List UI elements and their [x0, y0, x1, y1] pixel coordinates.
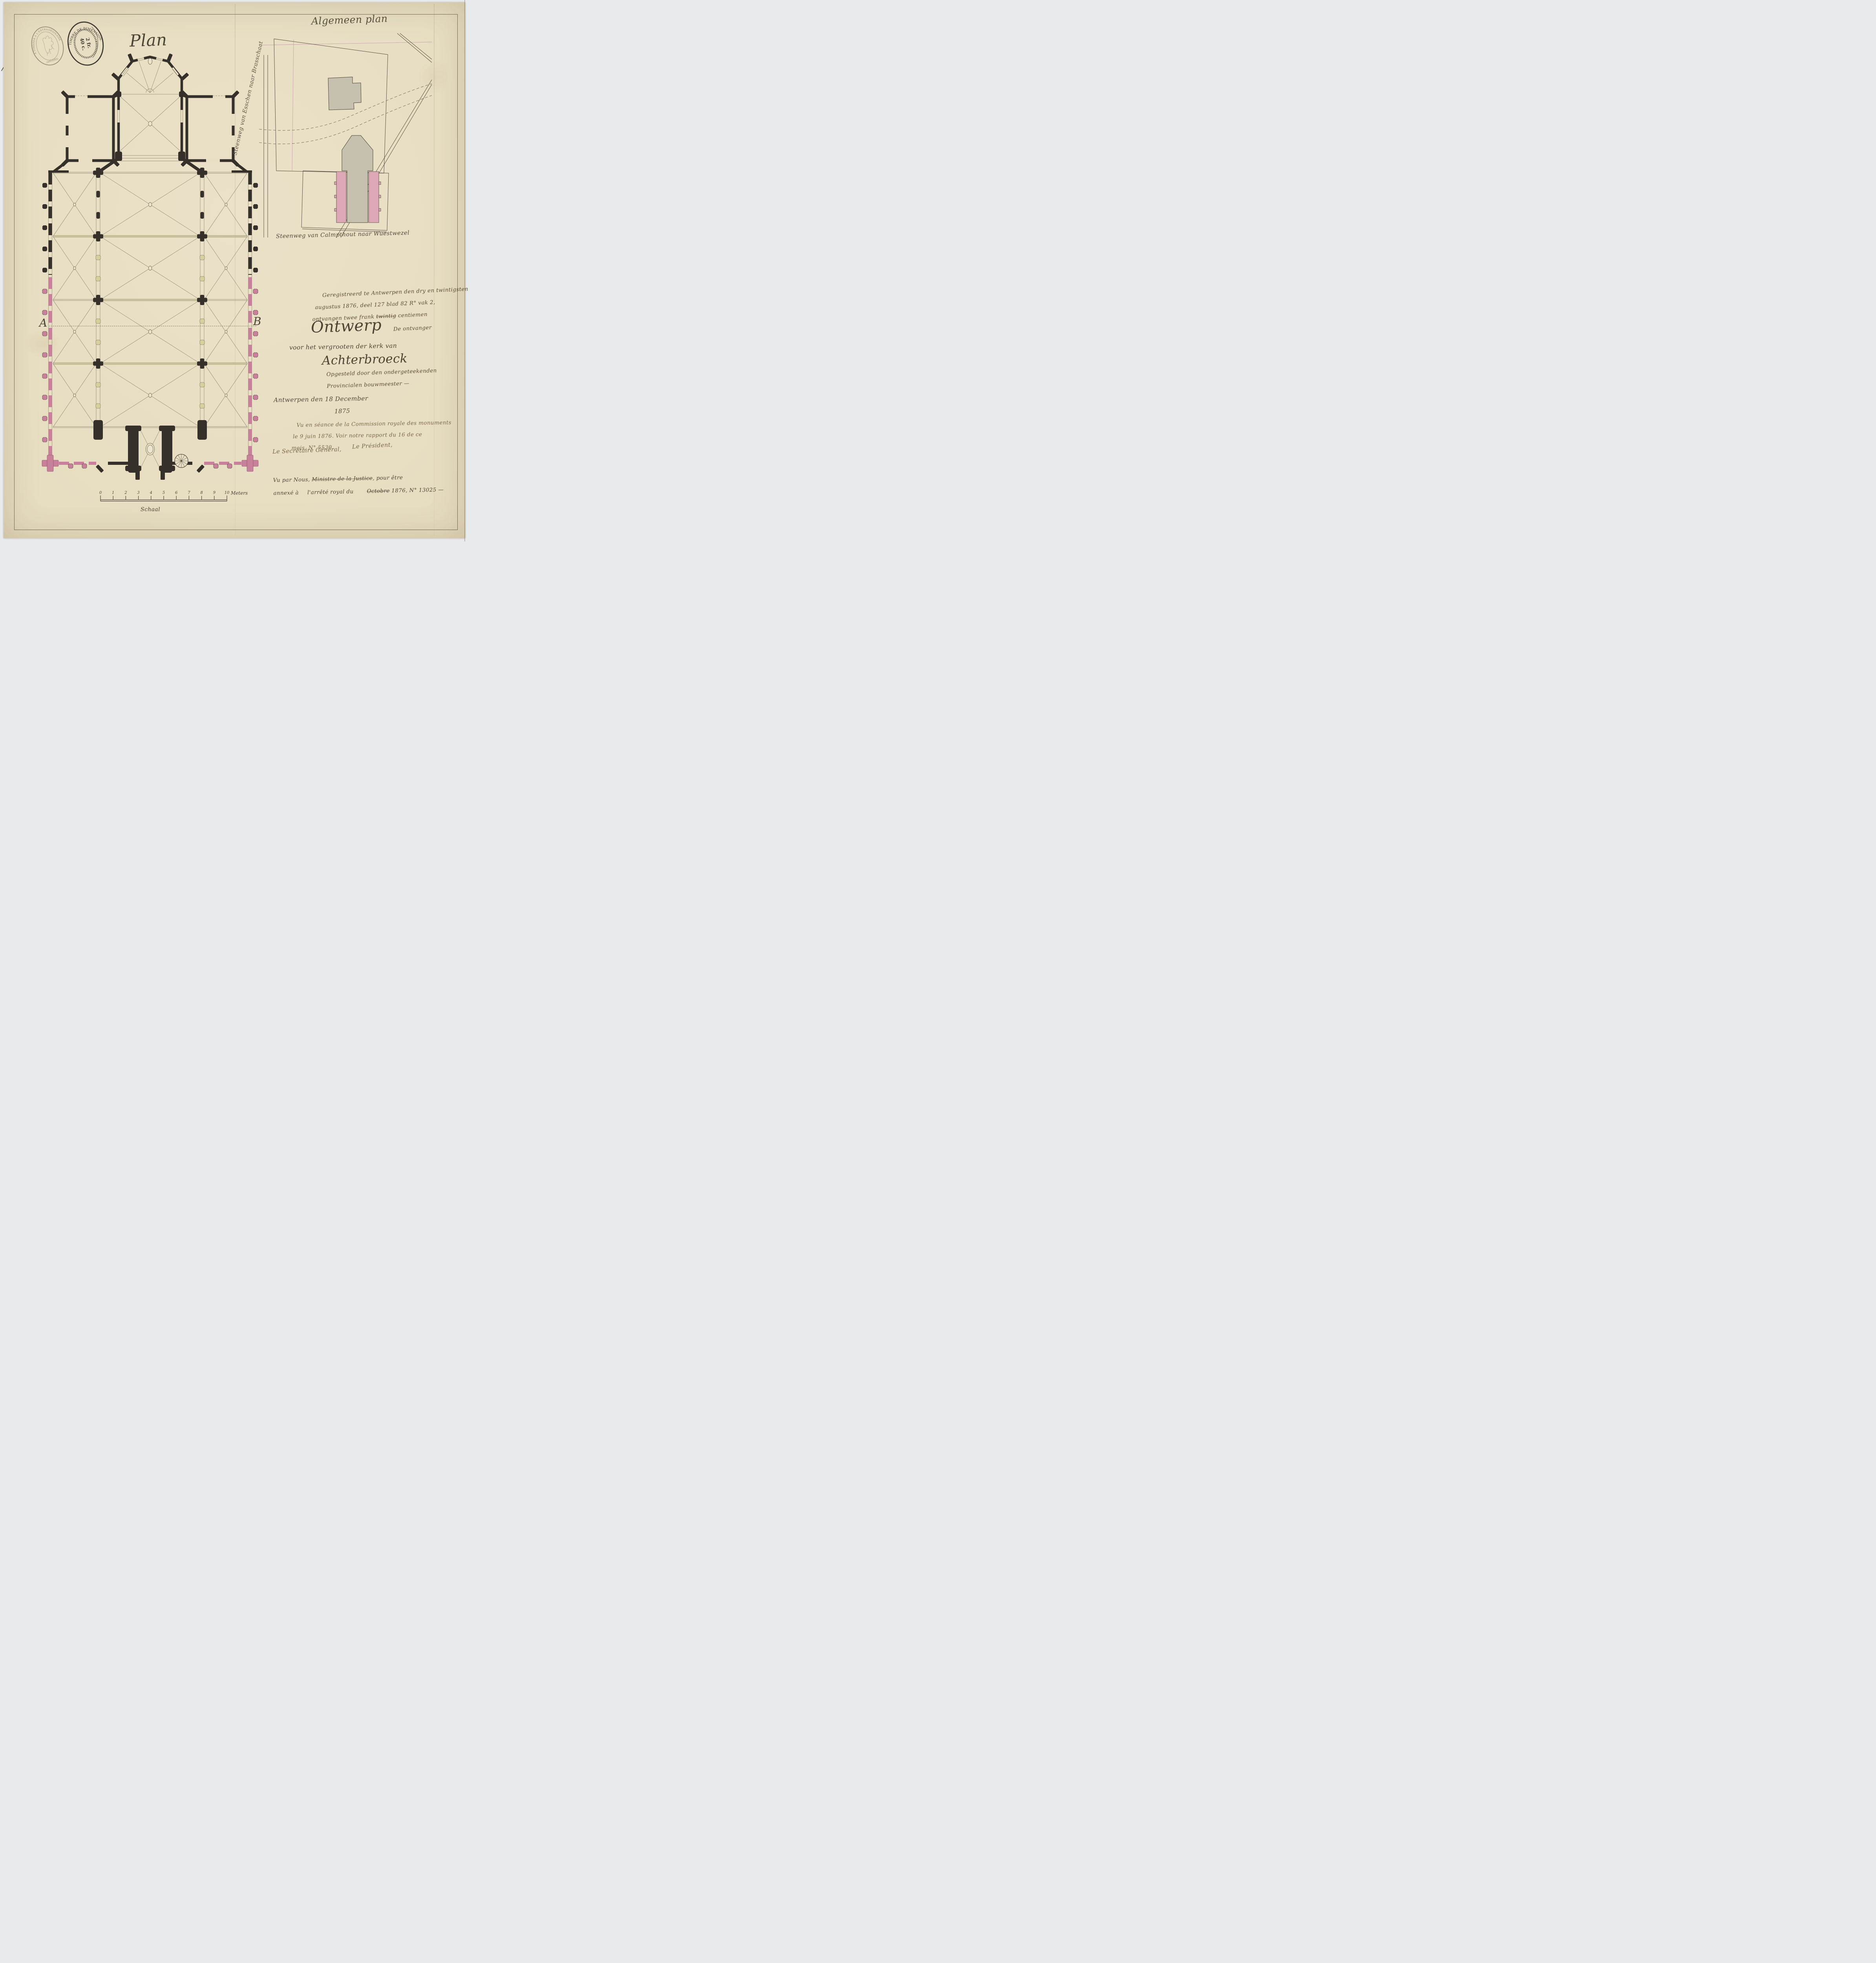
wall-window-gaps [67, 58, 233, 161]
scanned-drawing-sheet: A TIMBRER À L'EXTRAORDINAIRE (ANVERS) TI… [0, 0, 469, 541]
north-chapel [67, 97, 113, 161]
scale-tick-label: 3 [137, 491, 139, 495]
scale-label: Schaal [141, 506, 160, 513]
scale-tick-label: 1 [112, 491, 114, 495]
plan-title: Plan [129, 30, 167, 50]
church-existing-grey [342, 135, 373, 223]
outer-walls [50, 173, 250, 463]
minister-note: Vu par Nous, Ministre de la Justice, pou… [273, 470, 444, 500]
fold-crease [434, 4, 435, 536]
scale-tick-label: 4 [150, 491, 152, 495]
buttresses-black [61, 53, 239, 473]
window-glazing-lines [75, 58, 225, 122]
scale-tick-label: 9 [213, 491, 216, 495]
nave-piers [93, 168, 207, 440]
author-note: Opgesteld door den ondergeteekenden Prov… [326, 365, 437, 392]
scale-tick-label: 8 [200, 491, 203, 495]
buttress-bumps-new [42, 289, 258, 468]
existing-walls [48, 57, 252, 463]
section-label-b: B [253, 315, 261, 328]
south-chapel [187, 97, 233, 161]
scale-tick-label: 6 [175, 491, 178, 495]
presbytery-building [328, 77, 361, 110]
design-place: Achterbroeck [322, 351, 408, 368]
scale-tick-label: 7 [188, 491, 190, 495]
scale-unit-label: Meters [230, 490, 248, 496]
scale-tick-label: 10 [225, 491, 230, 495]
section-line-ab [49, 326, 256, 326]
scale-tick-label: 5 [163, 491, 165, 495]
scale-tick-label: 0 [99, 491, 102, 495]
section-label-a: A [39, 316, 47, 329]
lion-rampant-icon [41, 35, 57, 56]
old-foundation-bands [54, 235, 247, 365]
buttress-bumps-existing [42, 183, 258, 272]
church-floor-plan [37, 55, 263, 481]
date-year: 1875 [334, 407, 350, 415]
spiral-stair [175, 454, 188, 468]
scale-tick-label: 2 [124, 491, 127, 495]
site-plan [259, 33, 432, 238]
scale-bar: 0 1 2 3 4 5 6 7 8 9 10 Meters [97, 489, 245, 506]
design-title: Ontwerp [311, 316, 382, 336]
paper-edge-shadow [464, 0, 465, 541]
